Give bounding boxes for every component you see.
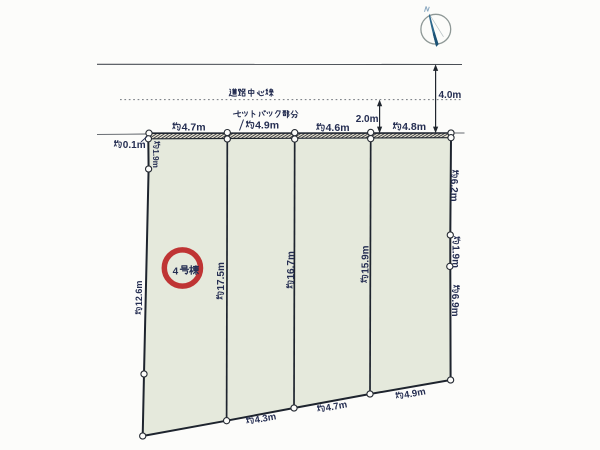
svg-text:4.9m: 4.9m xyxy=(255,120,279,132)
svg-text:4.7m: 4.7m xyxy=(182,121,206,133)
svg-text:4.8m: 4.8m xyxy=(402,121,426,133)
svg-text:1.9m: 1.9m xyxy=(450,245,461,268)
svg-text:17.5m: 17.5m xyxy=(216,262,227,290)
svg-text:16.7m: 16.7m xyxy=(286,251,297,279)
svg-text:4.0m: 4.0m xyxy=(439,90,462,101)
svg-text:1.9m: 1.9m xyxy=(151,149,160,168)
svg-text:6.9m: 6.9m xyxy=(449,294,460,317)
svg-text:2.0m: 2.0m xyxy=(356,114,379,125)
svg-text:12.6m: 12.6m xyxy=(134,281,144,307)
svg-text:4.6m: 4.6m xyxy=(326,122,350,134)
svg-text:0.1m: 0.1m xyxy=(123,140,146,151)
svg-text:15.9m: 15.9m xyxy=(360,245,371,273)
svg-text:6.2m: 6.2m xyxy=(448,179,459,202)
svg-text:4: 4 xyxy=(173,267,179,278)
